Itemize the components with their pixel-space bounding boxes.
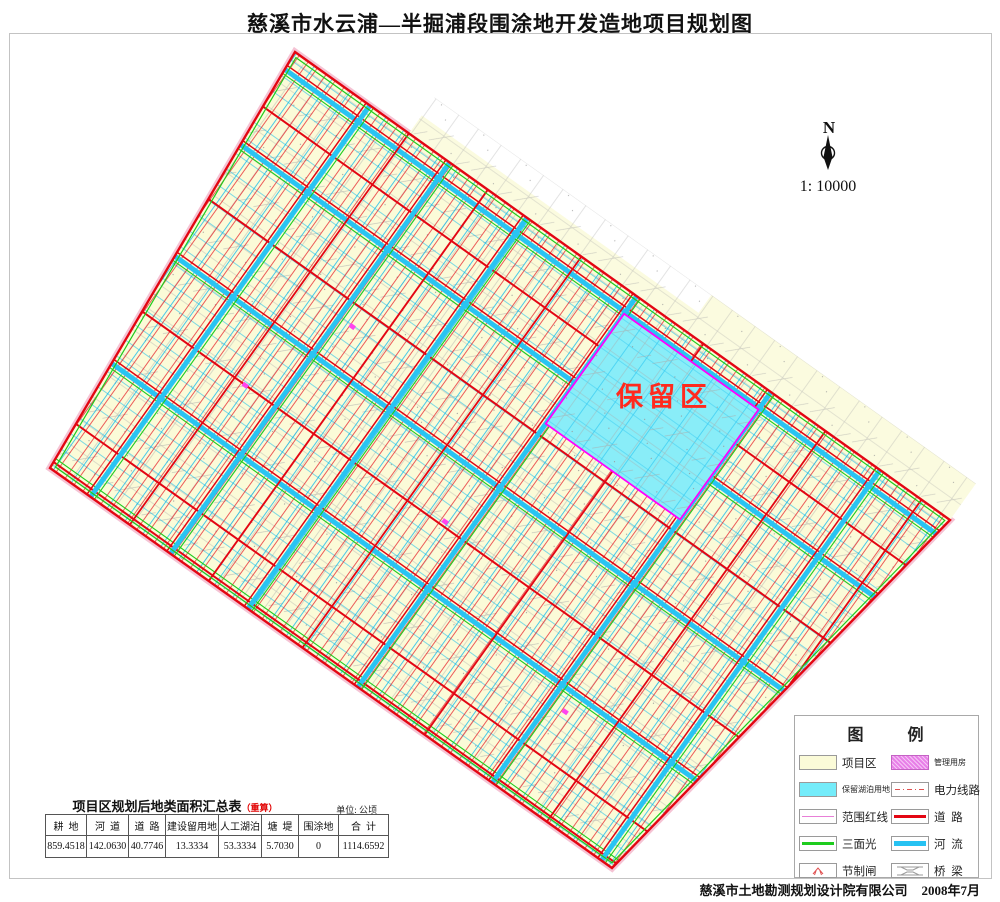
col-header: 建设留用地: [166, 815, 219, 836]
area-value: 0: [299, 836, 339, 858]
table-value-row: 859.4518 142.0630 40.7746 13.3334 53.333…: [46, 836, 389, 858]
river-swatch: [891, 836, 929, 851]
area-value: 5.7030: [262, 836, 299, 858]
bridge-swatch: [891, 863, 929, 878]
management-house-swatch: [891, 755, 929, 770]
legend-item-label: 管理用房: [934, 757, 966, 768]
legend-item-label: 道 路: [934, 809, 963, 825]
col-header: 耕 地: [46, 815, 87, 836]
legend-item-management-house: 管理用房: [891, 749, 983, 776]
legend-item-label: 三面光: [842, 836, 877, 852]
legend-item-label: 电力线路: [934, 782, 980, 798]
col-header: 道 路: [129, 815, 166, 836]
boundary-redline-swatch: [799, 809, 837, 824]
legend-item-label: 项目区: [842, 755, 877, 771]
legend-title: 图 例: [795, 721, 978, 745]
lined-canal-swatch: [799, 836, 837, 851]
col-header: 合 计: [339, 815, 389, 836]
green-line-icon: [802, 842, 834, 845]
area-value: 859.4518: [46, 836, 87, 858]
company-name: 慈溪市土地勘测规划设计院有限公司: [699, 883, 907, 898]
col-header: 塘 堤: [262, 815, 299, 836]
table-header-row: 耕 地 河 道 道 路 建设留用地 人工湖泊 塘 堤 围涂地 合 计: [46, 815, 389, 836]
legend-grid: 项目区 管理用房 保留湖泊用地 电力线路 范围红线 道 路: [795, 749, 978, 884]
scale-text: 1: 10000: [800, 178, 856, 195]
legend-item-label: 节制闸: [842, 863, 877, 879]
legend-item-label: 河 流: [934, 836, 963, 852]
reserved-lake-swatch: [799, 782, 837, 797]
legend-item-lined-canal: 三面光: [799, 830, 891, 857]
legend-item-power-line: 电力线路: [891, 776, 983, 803]
sluice-gate-swatch: [799, 863, 837, 878]
col-header: 河 道: [87, 815, 129, 836]
north-label: N: [823, 118, 836, 137]
road-swatch: [891, 809, 929, 824]
reserved-area-label: 保留区: [615, 382, 712, 412]
sluice-gate-icon: [810, 865, 826, 877]
publish-date: 2008年7月: [921, 883, 980, 898]
legend-item-river: 河 流: [891, 830, 983, 857]
legend-item-reserved-lake: 保留湖泊用地: [799, 776, 891, 803]
redline-icon: [802, 816, 834, 817]
compass-needle: [824, 135, 833, 170]
area-summary-table: 耕 地 河 道 道 路 建设留用地 人工湖泊 塘 堤 围涂地 合 计 859.4…: [45, 814, 389, 858]
bridge-icon: [894, 864, 926, 878]
project-area-swatch: [799, 755, 837, 770]
power-line-swatch: [891, 782, 929, 797]
area-value: 1114.6592: [339, 836, 389, 858]
legend-item-road: 道 路: [891, 803, 983, 830]
river-line-icon: [894, 841, 926, 846]
area-table-title-text: 项目区规划后地类面积汇总表: [72, 799, 241, 814]
legend-item-label: 保留湖泊用地: [842, 784, 890, 795]
area-value: 13.3334: [166, 836, 219, 858]
north-compass: N: [822, 118, 836, 170]
legend-item-bridge: 桥 梁: [891, 857, 983, 884]
area-value: 142.0630: [87, 836, 129, 858]
legend-item-label: 桥 梁: [934, 863, 963, 879]
legend-item-project-area: 项目区: [799, 749, 891, 776]
col-header: 围涂地: [299, 815, 339, 836]
road-line-icon: [894, 815, 926, 819]
planning-map-sheet: 慈溪市水云浦—半掘浦段围涂地开发造地项目规划图: [0, 0, 1000, 902]
legend-item-boundary-redline: 范围红线: [799, 803, 891, 830]
area-value: 53.3334: [219, 836, 262, 858]
power-line-icon: [895, 789, 925, 790]
area-value: 40.7746: [129, 836, 166, 858]
legend: 图 例 项目区 管理用房 保留湖泊用地 电力线路 范围红线: [794, 715, 979, 878]
legend-item-label: 范围红线: [842, 809, 888, 825]
col-header: 人工湖泊: [219, 815, 262, 836]
legend-item-sluice-gate: 节制闸: [799, 857, 891, 884]
